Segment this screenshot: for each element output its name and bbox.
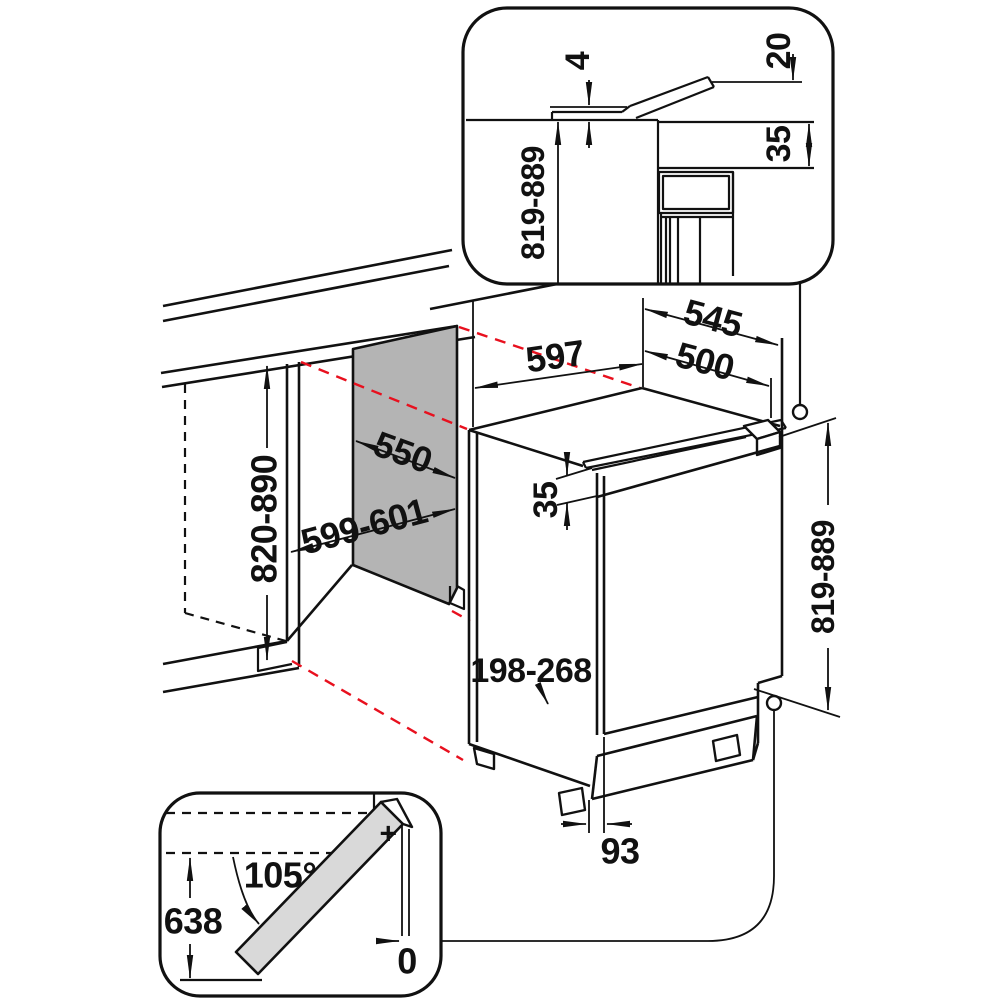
inset-label-rear-vent-gap: 35 xyxy=(760,126,798,163)
inset-label-door-overhang: 20 xyxy=(760,33,798,70)
inset-label-niche-height: 819-889 xyxy=(515,146,551,260)
dim-label-niche-height: 820-890 xyxy=(244,455,285,584)
door-handle-strip xyxy=(583,420,786,470)
label-zero-clearance: 0 xyxy=(397,941,417,982)
niche-foot xyxy=(258,642,292,671)
label-door-swing: 638 xyxy=(164,901,223,942)
dimensions-main: 597 545 500 550 599-601 820-890 35 198-2… xyxy=(244,291,842,872)
callout-point-top xyxy=(793,405,807,419)
dim-label-top-gap: 35 xyxy=(527,482,565,519)
bottom-inset: + 105° 638 0 xyxy=(160,793,441,996)
dim-label-plinth-recess: 93 xyxy=(600,831,639,872)
dim-label-fridge-height: 819-889 xyxy=(805,520,841,634)
fridge-drawing xyxy=(469,338,786,815)
dim-label-width: 597 xyxy=(523,332,587,381)
installation-diagram: 597 545 500 550 599-601 820-890 35 198-2… xyxy=(0,0,1000,1000)
callout-point-bottom xyxy=(767,696,781,710)
top-inset: 4 20 35 819-889 xyxy=(463,8,833,284)
label-door-angle: 105° xyxy=(244,855,316,896)
inset-label-counter-gap: 4 xyxy=(559,51,597,70)
diagram-page: 597 545 500 550 599-601 820-890 35 198-2… xyxy=(0,0,1000,1000)
foot-front xyxy=(559,788,585,815)
hinge-mark: + xyxy=(379,818,396,851)
foot-right xyxy=(713,735,740,761)
dim-label-plinth-range: 198-268 xyxy=(470,652,591,690)
